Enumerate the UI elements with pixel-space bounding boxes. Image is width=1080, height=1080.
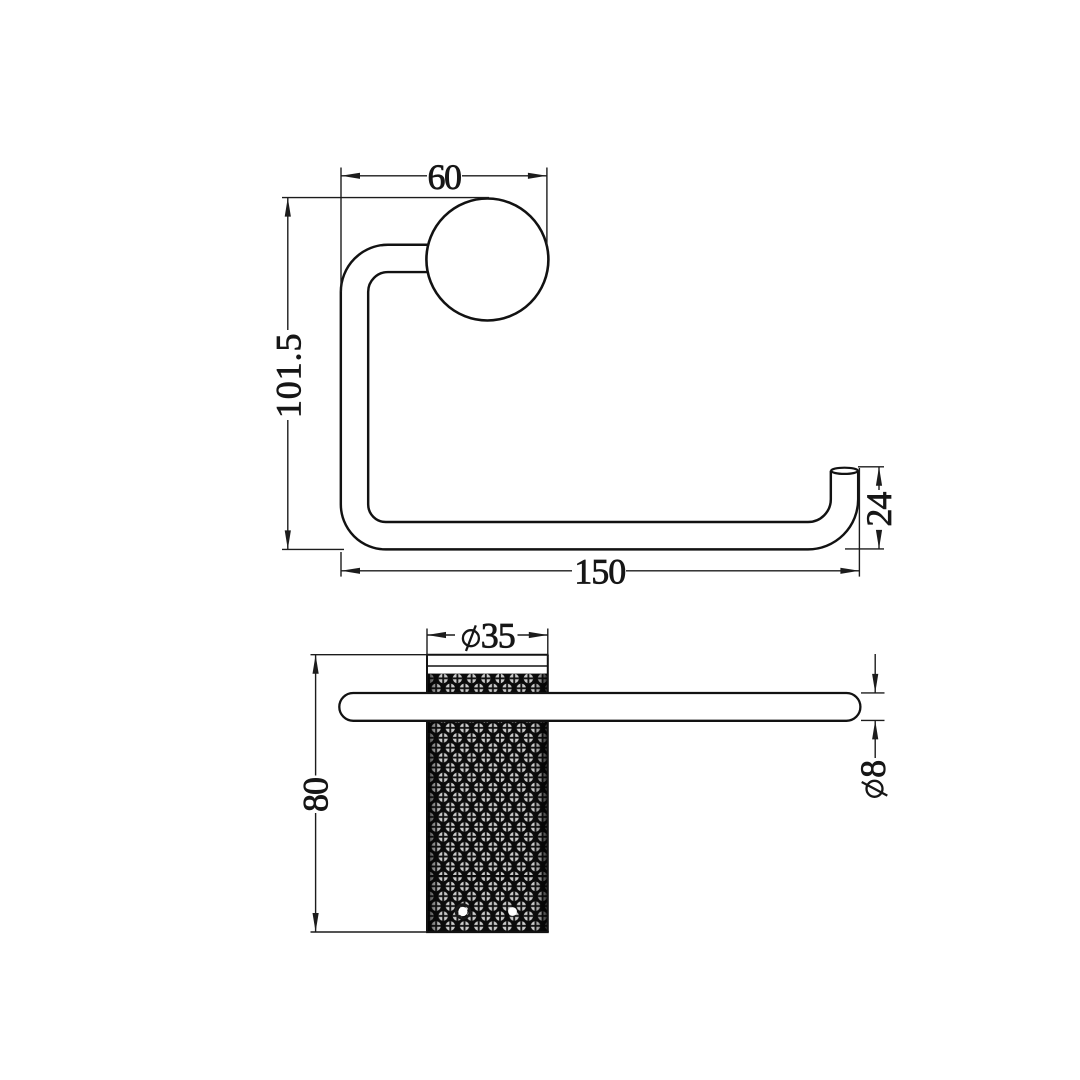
svg-text:101.5: 101.5 <box>269 333 309 419</box>
svg-text:80: 80 <box>295 778 335 812</box>
svg-text:35: 35 <box>481 615 515 655</box>
svg-text:60: 60 <box>428 157 462 197</box>
svg-text:8: 8 <box>853 761 893 778</box>
svg-text:24: 24 <box>859 492 899 527</box>
svg-text:150: 150 <box>574 551 625 591</box>
